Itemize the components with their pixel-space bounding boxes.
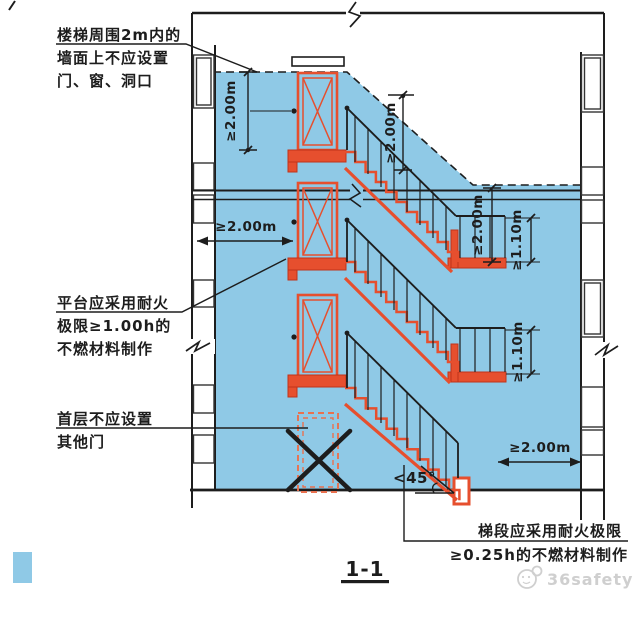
wall-window-frame: [585, 283, 601, 334]
wall-window-frame: [585, 58, 601, 109]
platform-stub: [288, 387, 297, 397]
dim-label: ≥2.00m: [470, 194, 486, 256]
dim-label: ≥2.00m: [383, 102, 399, 164]
page-accent-square: [13, 552, 32, 583]
dim-dot: [246, 148, 250, 152]
right-wall-break-gap: [594, 342, 620, 358]
wall-window: [194, 435, 215, 463]
watermark: 36safety: [518, 567, 633, 590]
wall-window: [582, 167, 604, 195]
door-handle-dot: [291, 334, 296, 339]
wall-window: [194, 385, 215, 413]
annotation-line: 梯段应采用耐火极限: [478, 522, 622, 540]
platform-stub: [288, 162, 297, 172]
dim-label: ≥2.00m: [223, 80, 239, 142]
door-platform: [288, 375, 346, 387]
watermark-label: 36safety: [547, 570, 633, 589]
wall-window: [194, 280, 215, 307]
dim-label: ≥1.10m: [509, 209, 525, 271]
annotation-line: 首层不应设置: [57, 410, 153, 428]
wall-window: [194, 163, 215, 190]
dim-label: ≥2.00m: [509, 440, 571, 456]
annotation-line: ≥0.25h的不燃材料制作: [450, 546, 628, 564]
rail-dot: [345, 218, 350, 223]
annotation-line: 楼梯周围2m内的: [57, 26, 181, 44]
annotation-line: 墙面上不应设置: [57, 49, 169, 67]
annotation-line: 门、窗、洞口: [57, 72, 153, 90]
stair-section-drawing: ≥2.00m ≥2.00m ≥2.00m ≥2.00m: [0, 0, 633, 620]
section-title-label: 1-1: [345, 557, 384, 581]
dim-label: ≥2.00m: [215, 219, 277, 235]
section-title-underline: [341, 580, 389, 583]
wall-window: [582, 430, 604, 455]
annotation-line: 不燃材料制作: [57, 340, 153, 358]
dimension-bottom-right: ≥2.00m: [498, 440, 581, 467]
annotation-line: 平台应采用耐火: [57, 294, 169, 312]
section-title: 1-1: [341, 557, 389, 583]
door-handle-dot: [291, 108, 296, 113]
watermark-logo-icon: [518, 567, 542, 589]
corner-tick: [9, 1, 15, 10]
dim-label: ≥1.10m: [510, 321, 526, 383]
door-handle-dot: [291, 219, 296, 224]
dim-label: <45°: [393, 469, 436, 487]
annotation-line: 极限≥1.00h的: [57, 317, 171, 335]
wall-window: [582, 200, 604, 223]
annotation-line: 其他门: [57, 433, 105, 451]
wall-window-frame: [197, 58, 212, 105]
left-wall: [186, 13, 215, 508]
landing-post: [451, 230, 458, 268]
slab-break-gap: [350, 183, 363, 205]
rail-dot: [345, 331, 350, 336]
platform-stub: [288, 270, 297, 280]
right-wall: [581, 13, 620, 520]
stair-section-diagram-page: ≥2.00m ≥2.00m ≥2.00m ≥2.00m: [0, 0, 633, 620]
wall-window: [582, 387, 604, 427]
door-platform: [288, 150, 346, 162]
right-wall-windows: [582, 55, 604, 455]
door-platform: [288, 258, 346, 270]
door-lintel: [292, 57, 344, 66]
left-wall-windows: [194, 55, 215, 463]
rail-dot: [345, 106, 350, 111]
